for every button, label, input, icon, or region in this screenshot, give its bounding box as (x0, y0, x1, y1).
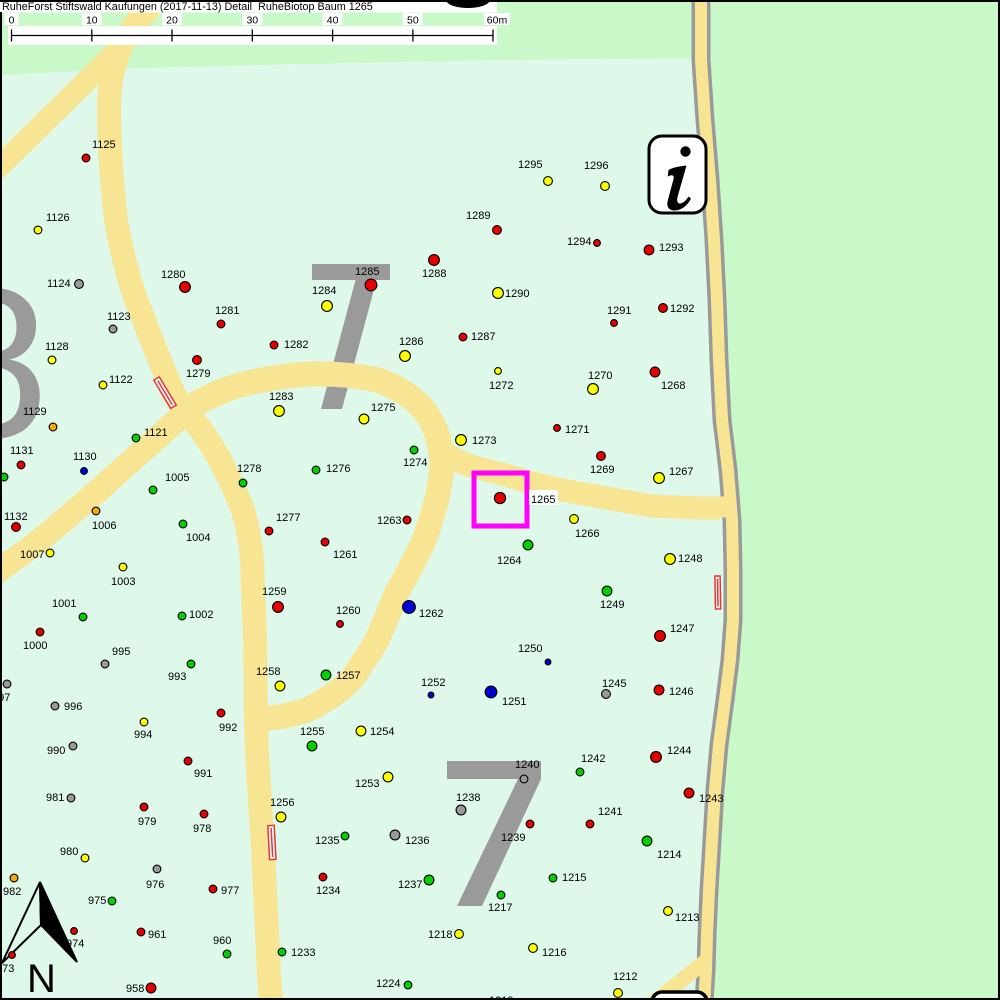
svg-text:1282: 1282 (284, 339, 308, 351)
svg-text:RuheForst Stiftswald Kaufungen: RuheForst Stiftswald Kaufungen (2017-11-… (2, 1, 373, 13)
svg-text:1240: 1240 (515, 759, 539, 771)
svg-text:1294: 1294 (567, 236, 591, 248)
svg-text:30: 30 (246, 15, 258, 27)
svg-text:977: 977 (221, 885, 239, 897)
svg-text:1247: 1247 (670, 623, 694, 635)
svg-text:975: 975 (88, 895, 106, 907)
svg-text:1272: 1272 (489, 380, 513, 392)
svg-text:1252: 1252 (421, 677, 445, 689)
svg-text:1267: 1267 (669, 466, 693, 478)
svg-text:1128: 1128 (45, 341, 69, 353)
svg-text:979: 979 (138, 816, 156, 828)
svg-text:1256: 1256 (270, 797, 294, 809)
svg-text:1007: 1007 (20, 549, 44, 561)
svg-text:1236: 1236 (405, 835, 429, 847)
svg-text:1261: 1261 (333, 549, 357, 561)
svg-text:1273: 1273 (472, 435, 496, 447)
svg-text:960: 960 (213, 935, 231, 947)
svg-text:1287: 1287 (471, 331, 495, 343)
svg-text:1132: 1132 (4, 511, 28, 523)
svg-text:1121: 1121 (144, 427, 168, 439)
svg-text:1235: 1235 (315, 835, 339, 847)
svg-text:1244: 1244 (667, 745, 691, 757)
svg-text:1243: 1243 (699, 793, 723, 805)
svg-text:20: 20 (166, 15, 178, 27)
svg-text:1291: 1291 (607, 305, 631, 317)
svg-text:976: 976 (146, 879, 164, 891)
svg-text:996: 996 (64, 701, 82, 713)
svg-text:1290: 1290 (505, 288, 529, 300)
svg-text:1130: 1130 (73, 451, 97, 463)
svg-text:1216: 1216 (542, 947, 566, 959)
svg-text:1217: 1217 (488, 902, 512, 914)
svg-text:993: 993 (168, 671, 186, 683)
svg-text:1280: 1280 (161, 269, 185, 281)
svg-text:1277: 1277 (276, 512, 300, 524)
svg-text:0: 0 (9, 15, 15, 27)
svg-text:1270: 1270 (588, 370, 612, 382)
svg-text:1004: 1004 (186, 532, 210, 544)
svg-text:1239: 1239 (501, 832, 525, 844)
svg-text:1274: 1274 (403, 457, 427, 469)
svg-text:992: 992 (219, 722, 237, 734)
svg-text:1248: 1248 (678, 553, 702, 565)
svg-text:981: 981 (46, 792, 64, 804)
svg-text:1275: 1275 (371, 402, 395, 414)
svg-text:10: 10 (86, 15, 98, 27)
svg-text:1269: 1269 (590, 464, 614, 476)
svg-text:1241: 1241 (598, 806, 622, 818)
svg-text:40: 40 (327, 15, 339, 27)
svg-text:1284: 1284 (312, 285, 336, 297)
svg-text:1283: 1283 (269, 391, 293, 403)
svg-text:1264: 1264 (497, 555, 521, 567)
svg-text:991: 991 (194, 768, 212, 780)
svg-text:1001: 1001 (52, 598, 76, 610)
svg-text:1245: 1245 (602, 678, 626, 690)
svg-text:961: 961 (148, 929, 166, 941)
svg-text:1212: 1212 (613, 971, 637, 983)
svg-text:1005: 1005 (165, 472, 189, 484)
svg-text:1237: 1237 (398, 879, 422, 891)
svg-text:1258: 1258 (256, 666, 280, 678)
svg-text:1276: 1276 (326, 463, 350, 475)
svg-text:N: N (27, 957, 56, 1000)
svg-text:1260: 1260 (336, 605, 360, 617)
svg-text:50: 50 (407, 15, 419, 27)
svg-text:1289: 1289 (466, 210, 490, 222)
svg-text:1002: 1002 (189, 609, 213, 621)
svg-text:1126: 1126 (46, 212, 70, 224)
svg-text:980: 980 (60, 846, 78, 858)
svg-text:1249: 1249 (600, 599, 624, 611)
svg-text:1006: 1006 (92, 520, 116, 532)
svg-text:1124: 1124 (47, 278, 71, 290)
svg-text:990: 990 (47, 745, 65, 757)
svg-text:1254: 1254 (370, 726, 394, 738)
svg-text:1263: 1263 (377, 515, 401, 527)
svg-text:1125: 1125 (92, 139, 116, 151)
svg-text:1218: 1218 (428, 929, 452, 941)
svg-text:1255: 1255 (300, 726, 324, 738)
svg-text:1293: 1293 (659, 242, 683, 254)
svg-text:1278: 1278 (237, 463, 261, 475)
svg-text:1279: 1279 (186, 368, 210, 380)
svg-text:974: 974 (66, 938, 84, 950)
svg-text:1250: 1250 (518, 643, 542, 655)
svg-text:1262: 1262 (419, 608, 443, 620)
svg-text:1259: 1259 (262, 586, 286, 598)
svg-text:1257: 1257 (336, 670, 360, 682)
svg-text:1215: 1215 (562, 872, 586, 884)
svg-text:978: 978 (193, 823, 211, 835)
svg-text:1281: 1281 (215, 305, 239, 317)
svg-text:1233: 1233 (291, 947, 315, 959)
svg-text:1131: 1131 (10, 445, 34, 457)
svg-text:995: 995 (112, 646, 130, 658)
svg-text:1265: 1265 (531, 494, 555, 506)
svg-text:1242: 1242 (581, 753, 605, 765)
svg-text:994: 994 (134, 729, 152, 741)
svg-text:1295: 1295 (518, 159, 542, 171)
svg-text:1234: 1234 (316, 885, 340, 897)
svg-text:982: 982 (3, 886, 21, 898)
svg-text:1129: 1129 (23, 406, 47, 418)
svg-text:1285: 1285 (355, 266, 379, 278)
svg-text:1296: 1296 (584, 160, 608, 172)
svg-text:1003: 1003 (111, 576, 135, 588)
svg-text:1268: 1268 (661, 380, 685, 392)
svg-text:1000: 1000 (23, 640, 47, 652)
svg-text:1214: 1214 (657, 849, 681, 861)
svg-text:1213: 1213 (675, 912, 699, 924)
svg-text:1266: 1266 (575, 528, 599, 540)
svg-text:973: 973 (0, 963, 14, 975)
svg-text:1292: 1292 (670, 303, 694, 315)
svg-text:1122: 1122 (109, 374, 133, 386)
svg-text:1271: 1271 (565, 424, 589, 436)
svg-text:1238: 1238 (456, 792, 480, 804)
svg-text:1224: 1224 (376, 978, 400, 990)
svg-text:1123: 1123 (107, 311, 131, 323)
svg-text:1288: 1288 (422, 268, 446, 280)
svg-text:60m: 60m (487, 15, 508, 27)
svg-text:958: 958 (126, 983, 144, 995)
svg-text:1251: 1251 (502, 696, 526, 708)
svg-text:1246: 1246 (669, 686, 693, 698)
svg-text:1286: 1286 (399, 336, 423, 348)
svg-text:1253: 1253 (355, 778, 379, 790)
